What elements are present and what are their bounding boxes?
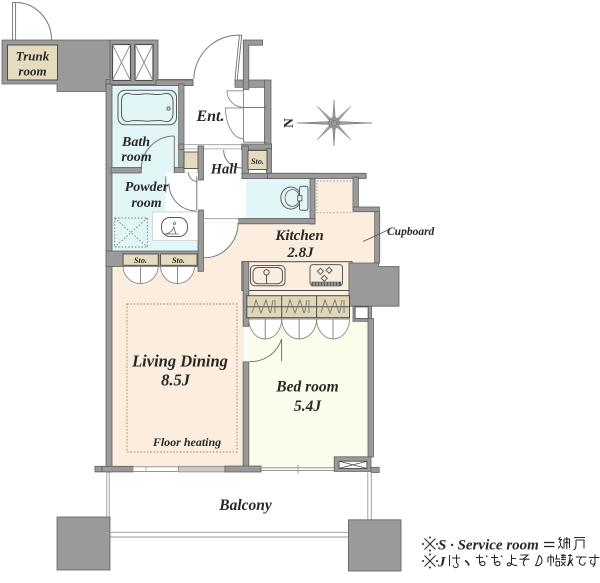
svg-text:S · Service room: S · Service room — [438, 538, 539, 554]
svg-text:Powder: Powder — [125, 180, 169, 195]
svg-text:room: room — [131, 196, 161, 211]
svg-text:Ent.: Ent. — [195, 108, 224, 125]
svg-text:8.5J: 8.5J — [161, 371, 191, 390]
svg-text:Sto.: Sto. — [134, 256, 147, 265]
svg-text:Kitchen: Kitchen — [274, 228, 323, 244]
svg-text:Floor heating: Floor heating — [152, 435, 221, 449]
svg-text:J: J — [437, 555, 446, 571]
svg-text:Bath: Bath — [121, 135, 150, 150]
svg-text:Balcony: Balcony — [218, 497, 272, 514]
svg-text:Cupboard: Cupboard — [387, 226, 435, 238]
svg-text:Sto.: Sto. — [251, 157, 264, 166]
svg-text:2.8J: 2.8J — [286, 245, 314, 261]
svg-text:Trunk: Trunk — [16, 49, 50, 64]
svg-text:N: N — [281, 118, 296, 128]
svg-text:Living Dining: Living Dining — [131, 352, 228, 371]
svg-text:5.4J: 5.4J — [294, 398, 322, 415]
svg-text:room: room — [18, 64, 46, 79]
svg-text:Hall: Hall — [210, 162, 238, 178]
svg-text:Bed room: Bed room — [275, 379, 338, 396]
svg-text:Sto.: Sto. — [172, 256, 185, 265]
svg-text:room: room — [121, 150, 151, 165]
